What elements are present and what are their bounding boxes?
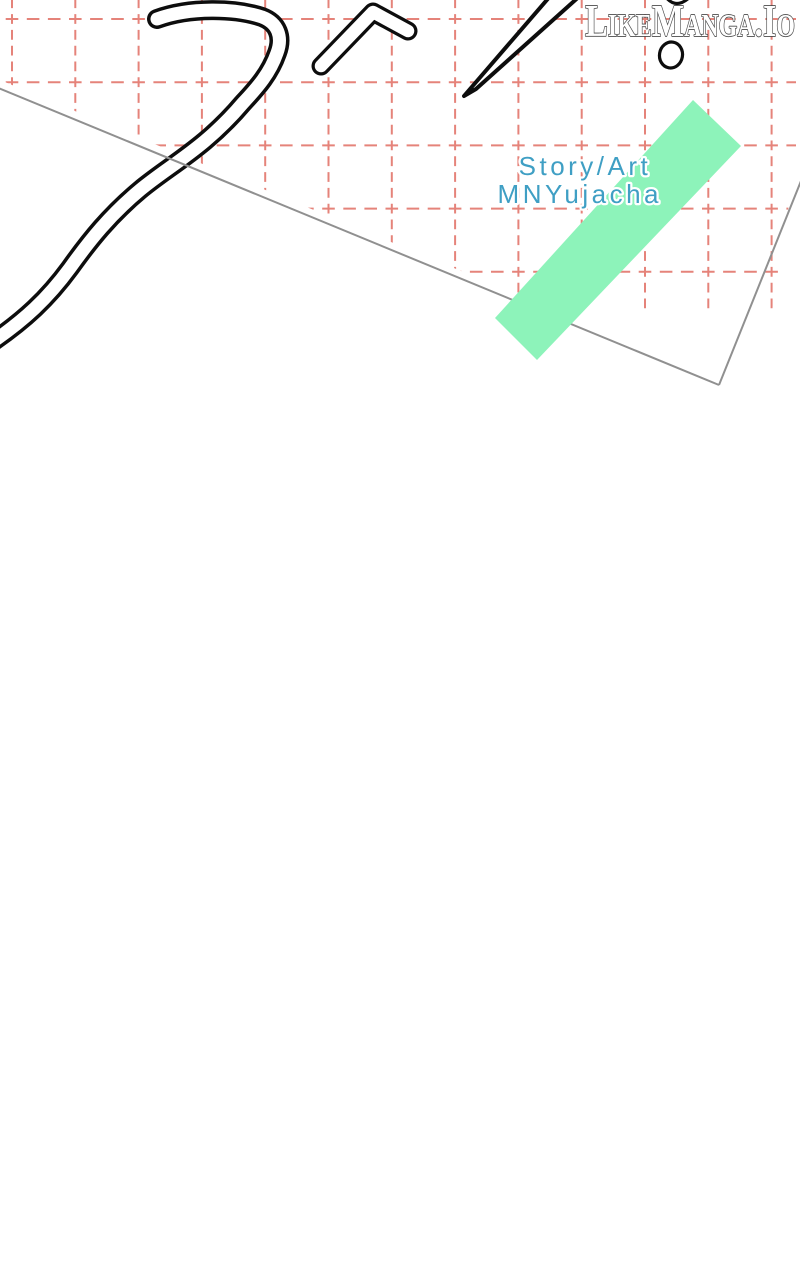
credits-text: Story/Art MNYujacha bbox=[498, 151, 662, 209]
sheet-edge-right bbox=[719, 181, 800, 385]
title-artwork: Story/Art MNYujacha LikeManga.Io bbox=[0, 0, 800, 400]
credits-role: Story/Art bbox=[519, 151, 652, 181]
site-watermark-logo: LikeManga.Io bbox=[585, 0, 795, 46]
manga-page: Story/Art MNYujacha LikeManga.Io bbox=[0, 0, 800, 1280]
credits-author: MNYujacha bbox=[498, 179, 662, 209]
tape-band bbox=[495, 100, 741, 360]
